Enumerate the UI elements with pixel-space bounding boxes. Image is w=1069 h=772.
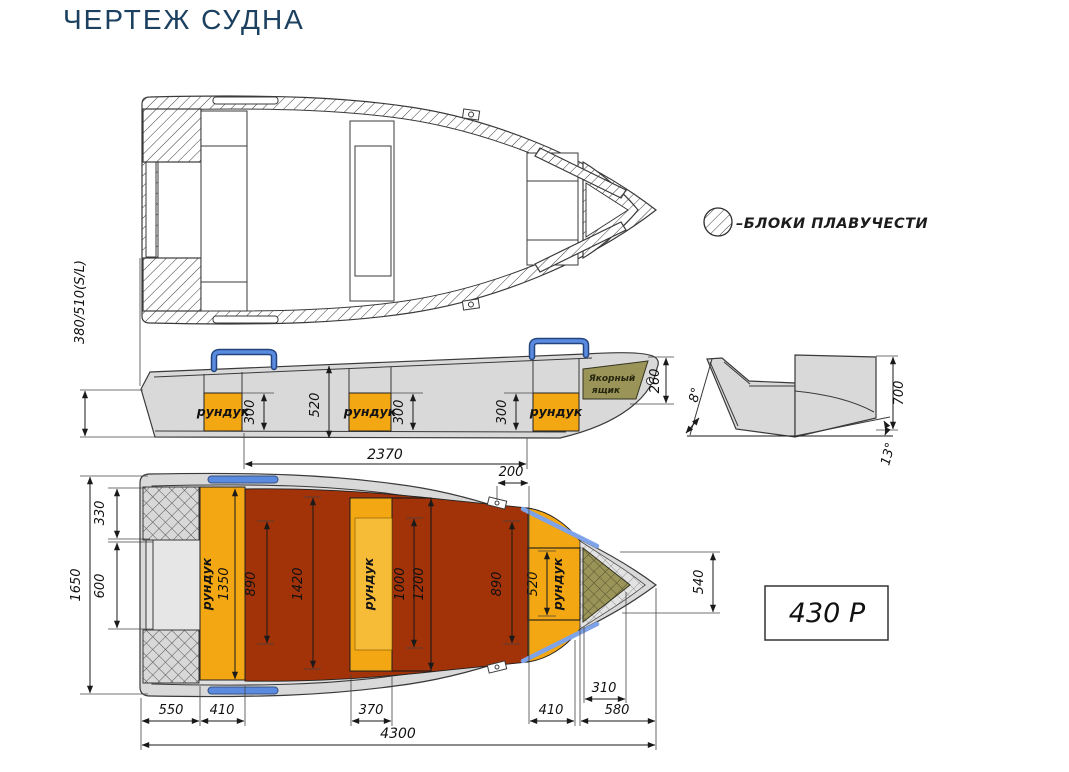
side-handle-stern	[214, 352, 274, 369]
dim-transom-angle: 13°	[878, 441, 898, 467]
legend: –БЛОКИ ПЛАВУЧЕСТИ	[704, 208, 928, 236]
dim-hull-depth: 520	[308, 393, 323, 418]
side-locker-mid-label: рундук	[343, 404, 397, 419]
transom-view: 8° 700 13°	[686, 355, 907, 467]
side-locker-stern-label: рундук	[196, 404, 250, 419]
dim-stern-overhang: 550	[159, 703, 184, 718]
dim-cockpit-length: 2370	[367, 447, 403, 463]
plan-handle-bottom	[208, 687, 278, 694]
oarlock-bottom	[462, 299, 479, 310]
plan-block-stern-bottom	[143, 630, 199, 683]
dim-bow-section: 580	[605, 703, 630, 718]
dim-gunwale-step: 200	[499, 465, 524, 480]
model-box: 430 Р	[765, 586, 888, 640]
stern-handle-top	[213, 97, 278, 104]
buoyancy-block-stern-bottom	[143, 258, 201, 311]
plan-locker-mid-label: рундук	[361, 557, 376, 611]
anchor-box-label-2: ящик	[591, 386, 621, 396]
dim-locker-depth-2: 300	[392, 400, 407, 425]
dim-anchor-depth: 310	[592, 681, 617, 696]
dim-floor-width-stern: 890	[244, 572, 259, 597]
dim-locker-depth-3: 300	[495, 400, 510, 425]
dim-bow-width: 540	[692, 570, 707, 595]
dim-stern-locker-w: 410	[210, 703, 235, 718]
dim-locker-depth-1: 300	[243, 400, 258, 425]
plan-handle-top	[208, 476, 278, 483]
model-box-label: 430 Р	[789, 598, 866, 629]
dim-stern-platform: 600	[93, 574, 108, 599]
plan-locker-stern-label: рундук	[199, 557, 214, 611]
mid-seat	[350, 121, 394, 301]
dim-transom-height: 380/510(S/L)	[73, 260, 88, 344]
dim-mid-locker-w: 370	[359, 703, 384, 718]
dim-beam: 1650	[69, 568, 84, 601]
stern-handle-bottom	[213, 316, 278, 323]
side-locker-bow-label: рундук	[529, 404, 583, 419]
plan-view: рундук рундук рундук 1650 330 600 1350	[69, 465, 720, 750]
dim-mid-seat-len: 1000	[393, 567, 408, 600]
section-left-half	[707, 358, 795, 437]
oarlock-top	[463, 109, 480, 120]
dim-transom-height-700: 700	[892, 381, 907, 406]
buoyancy-legend-label: –БЛОКИ ПЛАВУЧЕСТИ	[736, 216, 928, 232]
stern-channel	[146, 162, 156, 257]
anchor-box-label-1: Якорный	[588, 374, 636, 384]
plan-stern-platform	[146, 540, 200, 630]
stern-seat	[201, 111, 247, 311]
dim-bow-locker-w: 410	[539, 703, 564, 718]
boat-drawing-page: ЧЕРТЕЖ СУДНА	[0, 0, 1069, 772]
plan-block-stern-top	[143, 487, 199, 540]
dim-overall-length: 4300	[380, 726, 416, 742]
dim-stern-locker-len: 1350	[217, 567, 232, 600]
buoyancy-block-stern-top	[143, 109, 201, 162]
dim-bow-box-depth: 260	[648, 369, 663, 394]
buoyancy-legend-icon	[704, 208, 732, 236]
top-view	[142, 96, 656, 324]
plan-locker-bow-label: рундук	[550, 557, 565, 611]
dim-mid-seat-outer-len: 1200	[412, 567, 427, 600]
dim-deadrise-angle: 8°	[686, 386, 704, 404]
dim-floor-width-max: 1420	[291, 567, 306, 600]
dim-floor-width-bow: 890	[490, 572, 505, 597]
transom-panel	[795, 355, 876, 437]
dim-bow-locker-len: 520	[526, 572, 541, 597]
dim-stern-block: 330	[93, 501, 108, 526]
boat-drawing-svg: –БЛОКИ ПЛАВУЧЕСТИ рундук рундук рундук Я…	[0, 0, 1069, 772]
